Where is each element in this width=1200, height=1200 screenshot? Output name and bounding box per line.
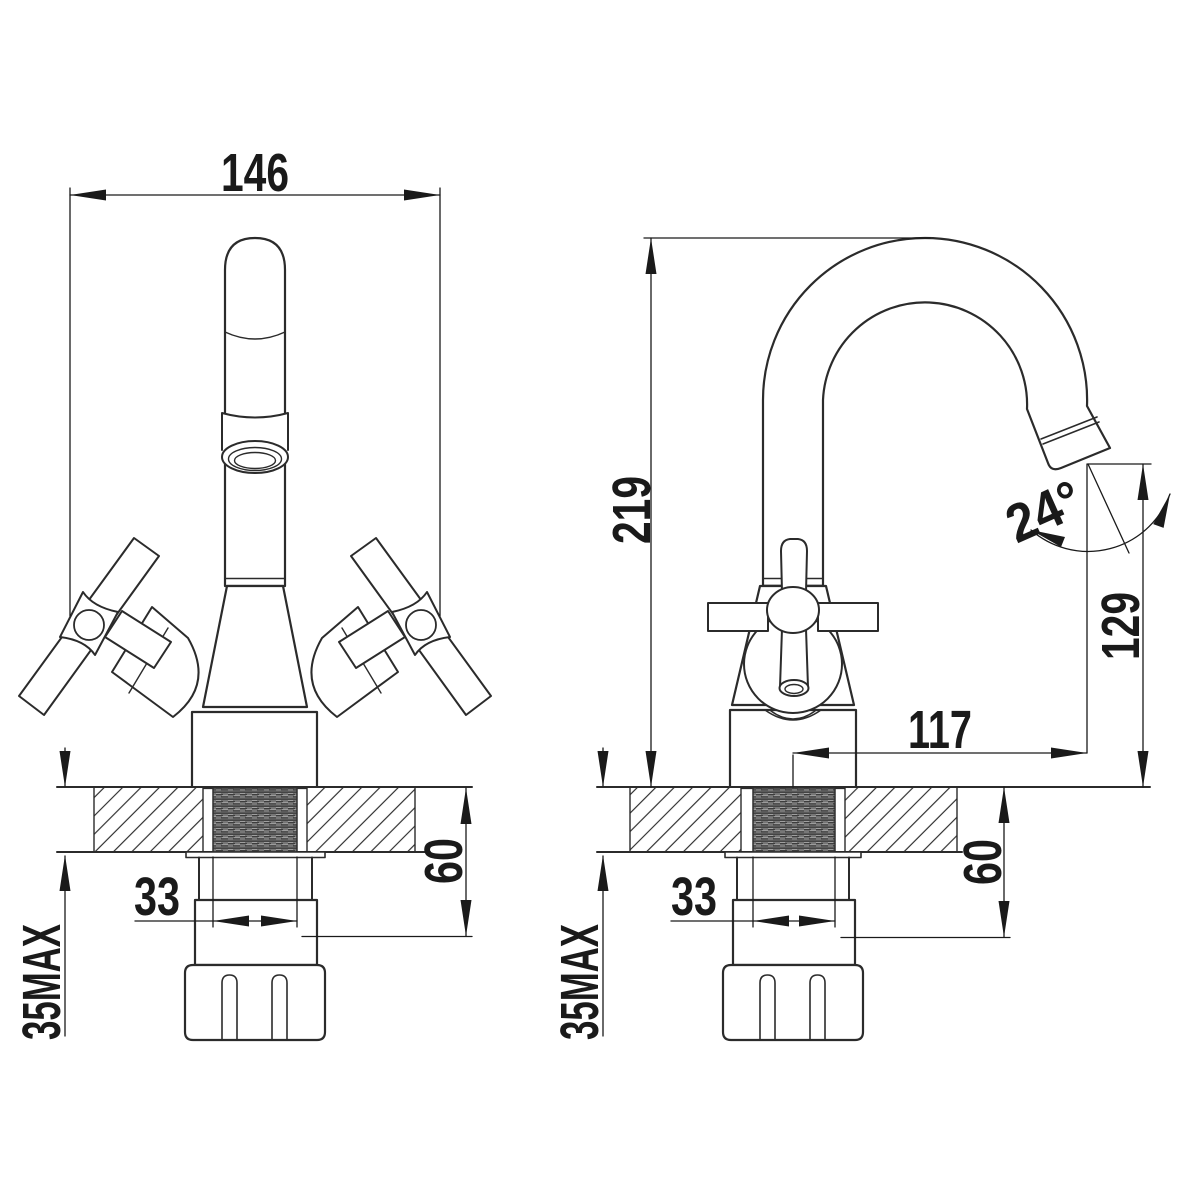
faucet-dimension-drawing: 146 33 60 35MAX (0, 0, 1200, 1200)
countertop-hatch (307, 788, 415, 852)
washer-flange (725, 852, 861, 858)
threaded-shank (213, 788, 297, 852)
countertop-hatch (94, 788, 203, 852)
handle-hub-boss (767, 587, 819, 633)
handle-arm-right (818, 603, 878, 631)
technical-drawing-page: 146 33 60 35MAX (0, 0, 1200, 1200)
mounting-nut-body (733, 900, 855, 965)
mounting-nut-cap (723, 965, 863, 1040)
countertop-hatch (845, 788, 957, 852)
dim-side-shank-length-label: 60 (953, 839, 1013, 885)
dim-side-thread-diameter-label: 33 (671, 867, 717, 927)
handle-arm-top (781, 539, 807, 592)
dim-side-deck-thickness-label: 35MAX (550, 924, 610, 1040)
dim-front-shank-length-label: 60 (414, 838, 474, 884)
front-base (192, 712, 317, 788)
dim-side-overall-height-label: 219 (602, 476, 662, 544)
handle-hub-circle (74, 610, 104, 640)
washer-flange (186, 852, 325, 858)
dim-side-outlet-height-label: 129 (1091, 592, 1151, 660)
handle-arm-left (708, 603, 768, 631)
dim-side-spout-reach-label: 117 (908, 700, 972, 760)
handle-arm-bottom (780, 629, 808, 687)
threaded-shank (753, 788, 835, 852)
countertop-hatch (630, 788, 741, 852)
dim-front-overall-width-label: 146 (221, 143, 289, 203)
front-spout (222, 238, 288, 586)
dim-front-deck-thickness-label: 35MAX (12, 924, 72, 1040)
mounting-nut-cap (185, 965, 325, 1040)
handle-hub-circle (406, 610, 436, 640)
dim-front-thread-diameter-label: 33 (134, 867, 180, 927)
